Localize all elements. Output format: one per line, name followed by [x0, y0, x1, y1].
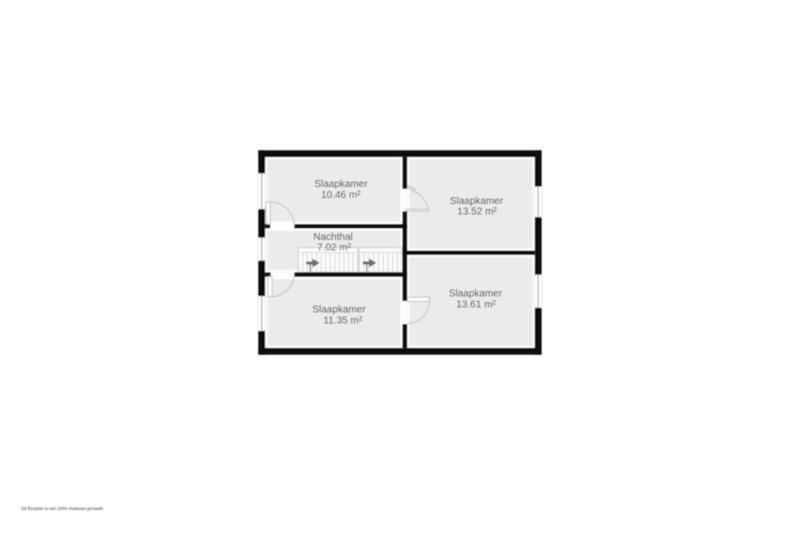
svg-text:11.35 m²: 11.35 m²	[323, 316, 362, 327]
svg-text:Slaapkamer: Slaapkamer	[312, 305, 366, 316]
svg-text:10.46 m²: 10.46 m²	[321, 190, 361, 201]
svg-text:Slaapkamer: Slaapkamer	[450, 196, 504, 207]
svg-text:Slaapkamer: Slaapkamer	[314, 179, 368, 190]
svg-text:Dit floorplan is niet 100% maa: Dit floorplan is niet 100% maatvast gema…	[21, 506, 104, 511]
svg-text:13.61 m²: 13.61 m²	[456, 299, 496, 310]
svg-text:13.52 m²: 13.52 m²	[457, 207, 497, 218]
svg-text:7.02 m²: 7.02 m²	[317, 243, 352, 254]
svg-text:Slaapkamer: Slaapkamer	[449, 289, 503, 300]
svg-text:Nachthal: Nachthal	[313, 232, 352, 243]
